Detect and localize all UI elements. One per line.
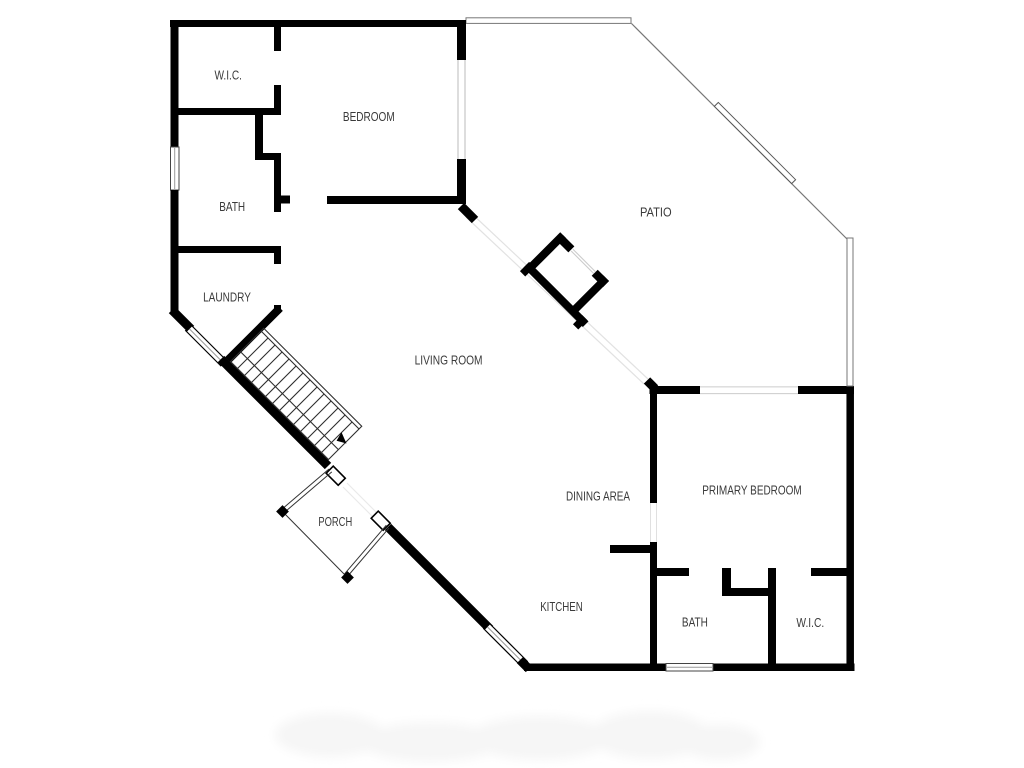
svg-text:LAUNDRY: LAUNDRY: [203, 290, 251, 304]
svg-text:W.I.C.: W.I.C.: [796, 616, 824, 630]
svg-text:LIVING ROOM: LIVING ROOM: [415, 353, 483, 367]
svg-text:W.I.C.: W.I.C.: [214, 68, 242, 82]
svg-text:PATIO: PATIO: [640, 206, 672, 220]
svg-text:BATH: BATH: [682, 616, 708, 630]
svg-text:PRIMARY BEDROOM: PRIMARY BEDROOM: [702, 483, 802, 497]
svg-text:DINING AREA: DINING AREA: [566, 490, 631, 504]
svg-text:KITCHEN: KITCHEN: [540, 600, 583, 614]
svg-text:BATH: BATH: [219, 200, 245, 214]
svg-text:PORCH: PORCH: [318, 515, 352, 529]
svg-text:BEDROOM: BEDROOM: [343, 110, 395, 124]
